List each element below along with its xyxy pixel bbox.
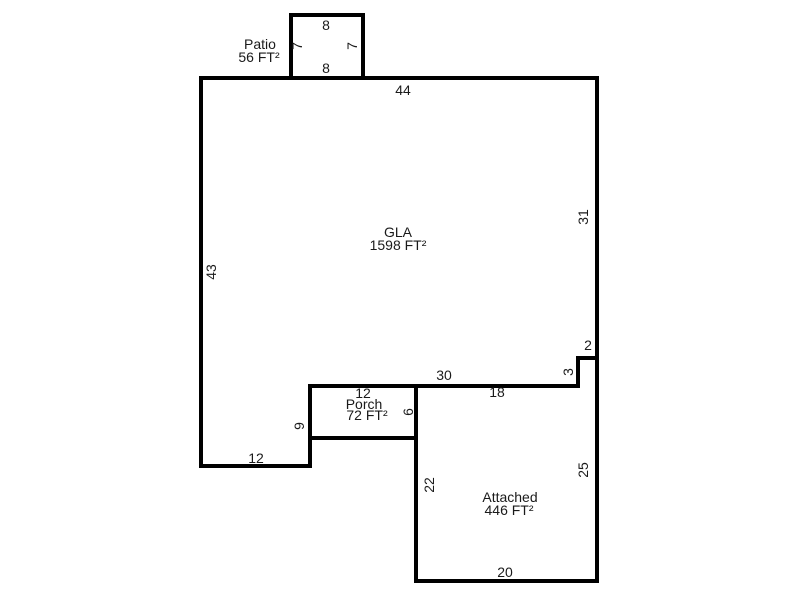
dim-patio-left: 7: [290, 42, 304, 50]
dim-gla-bottom-left: 12: [248, 451, 264, 465]
attached-outline: [416, 358, 597, 581]
porch-area-label: 72 FT²: [346, 408, 387, 422]
dim-gla-top: 44: [395, 83, 411, 97]
dim-attached-right: 25: [576, 462, 590, 478]
dim-attached-top: 18: [489, 385, 505, 399]
dim-patio-bottom: 8: [322, 61, 330, 75]
dim-attached-bottom: 20: [497, 565, 513, 579]
dim-gla-right: 31: [576, 209, 590, 225]
gla-outline: [201, 78, 597, 466]
floor-plan-sketch: Patio 56 FT² 8 7 7 8 44 GLA 1598 FT² 31 …: [0, 0, 800, 600]
attached-area-label: 446 FT²: [484, 503, 533, 517]
dim-patio-top: 8: [322, 18, 330, 32]
dim-step-height: 3: [561, 368, 575, 376]
dim-rear-span: 30: [436, 368, 452, 382]
dim-patio-right: 7: [345, 42, 359, 50]
dim-step-width: 2: [584, 338, 592, 352]
dim-gla-left: 43: [204, 264, 218, 280]
dim-porch-right: 6: [401, 408, 415, 416]
gla-area-label: 1598 FT²: [370, 238, 427, 252]
patio-area-label: 56 FT²: [238, 50, 279, 64]
dim-notch-height: 9: [292, 422, 306, 430]
dim-attached-left: 22: [422, 477, 436, 493]
